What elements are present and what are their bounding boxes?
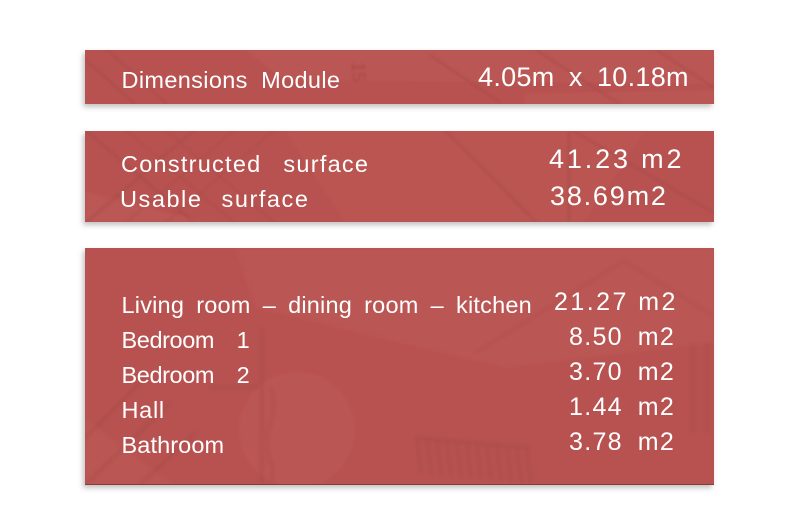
svg-text:15: 15	[348, 62, 368, 82]
